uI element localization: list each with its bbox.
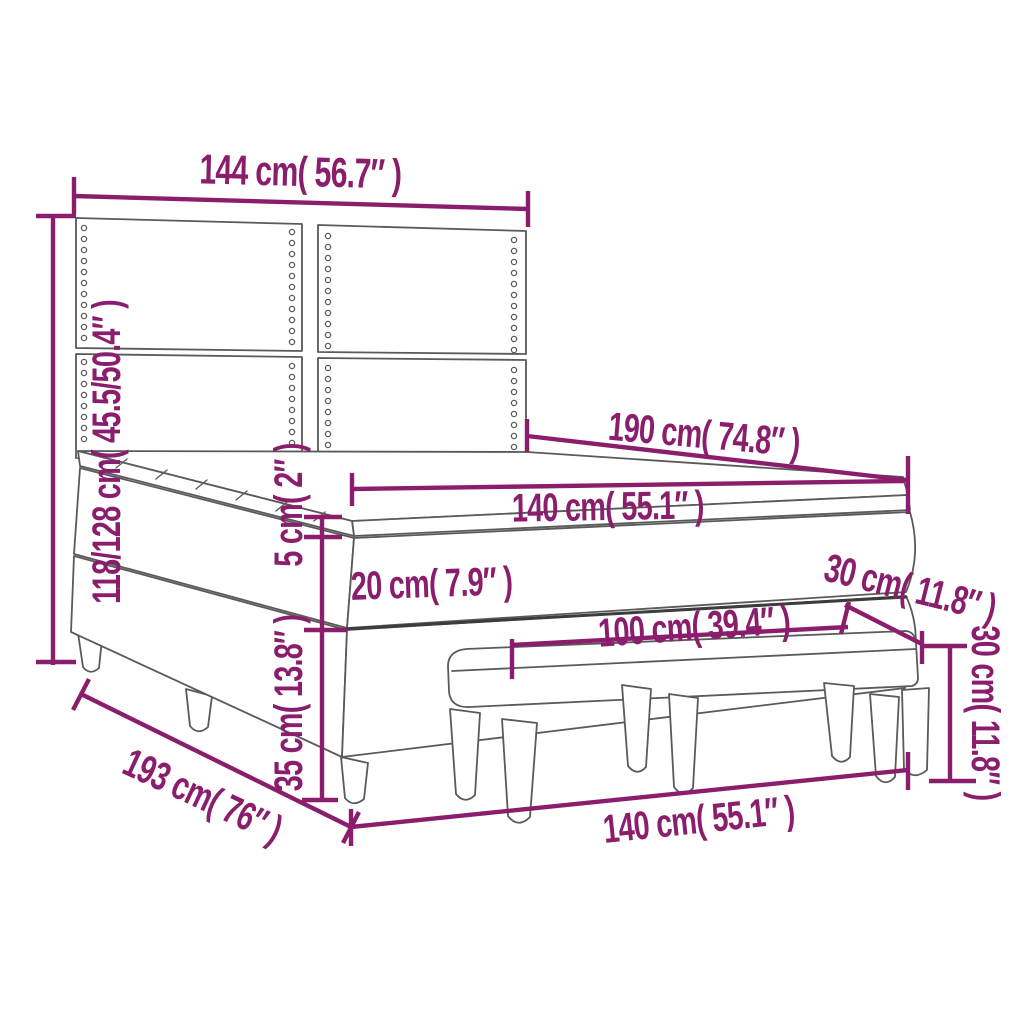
nailhead-dot (325, 277, 330, 282)
nailhead-dot (511, 400, 516, 405)
nailhead-dot (325, 288, 330, 293)
nailhead-dot (289, 374, 294, 379)
nailhead-dot (289, 418, 294, 423)
nailhead-dot (511, 367, 516, 372)
nailhead-dot (511, 248, 516, 253)
nailhead-dot (325, 310, 330, 315)
nailhead-dot (289, 273, 294, 278)
nailhead-dot (81, 258, 86, 263)
nailhead-dot (289, 363, 294, 368)
nailhead-dot (81, 280, 86, 285)
nailhead-dot (511, 303, 516, 308)
dim-frame-length-label: 193 cm( 76″ ) (116, 740, 288, 852)
nailhead-dot (511, 433, 516, 438)
dim-bed-length-label: 190 cm( 74.8″ ) (607, 404, 802, 465)
nailhead-dot (511, 411, 516, 416)
bench-leg (450, 709, 480, 800)
nailhead-dot (325, 299, 330, 304)
nailhead-dot (289, 317, 294, 322)
nailhead-dot (289, 251, 294, 256)
nailhead-dot (511, 422, 516, 427)
nailhead-dot (325, 398, 330, 403)
headboard-panel-top-right (318, 225, 526, 354)
nailhead-dot (511, 378, 516, 383)
nailhead-dot (325, 233, 330, 238)
nailhead-dot (325, 332, 330, 337)
diagram-canvas: 144 cm( 56.7″ ) 118/128 cm( 45.5/50.4″ )… (0, 0, 1024, 1024)
bed-dimension-diagram: 144 cm( 56.7″ ) 118/128 cm( 45.5/50.4″ )… (0, 0, 1024, 1024)
nailhead-dot (289, 306, 294, 311)
dim-overall-height-label: 118/128 cm( 45.5/50.4″ ) (84, 300, 129, 604)
nailhead-dot (325, 442, 330, 447)
nailhead-dot (511, 292, 516, 297)
nailhead-dot (511, 336, 516, 341)
nailhead-dot (81, 269, 86, 274)
dim-overall-height (36, 216, 76, 665)
nailhead-dot (289, 262, 294, 267)
nailhead-dot (325, 321, 330, 326)
nailhead-dot (289, 229, 294, 234)
nailhead-dot (289, 407, 294, 412)
dim-bench-height-label: 30 cm( 11.8″ ) (963, 626, 1008, 801)
nailhead-dot (289, 429, 294, 434)
nailhead-dot (325, 431, 330, 436)
dim-base-height-label: 35 cm( 13.8″ ) (266, 615, 311, 792)
bench-leg (622, 685, 651, 772)
nailhead-dot (511, 237, 516, 242)
nailhead-dot (81, 236, 86, 241)
bed-leg (341, 757, 368, 803)
bench-leg (870, 694, 899, 782)
nailhead-dot (289, 240, 294, 245)
dim-topper-thickness-label: 5 cm( 2″ ) (266, 443, 311, 566)
headboard-panel-bottom-right (318, 358, 526, 460)
nailhead-dot (511, 314, 516, 319)
dim-mattress-thickness-label: 20 cm( 7.9″ ) (350, 559, 513, 609)
nailhead-dot (325, 387, 330, 392)
nailhead-dot (511, 259, 516, 264)
nailhead-dot (289, 328, 294, 333)
nailhead-dot (289, 284, 294, 289)
nailhead-dot (325, 376, 330, 381)
nailhead-dot (81, 291, 86, 296)
nailhead-dot (81, 225, 86, 230)
nailhead-dot (511, 325, 516, 330)
nailhead-dot (289, 339, 294, 344)
bench-leg (824, 683, 854, 762)
nailhead-dot (325, 365, 330, 370)
bench-leg (669, 694, 698, 793)
nailhead-dot (325, 244, 330, 249)
dim-mattress-width-label: 140 cm( 55.1″ ) (511, 483, 704, 531)
nailhead-dot (511, 270, 516, 275)
dimension-line (74, 196, 528, 209)
nailhead-dot (289, 295, 294, 300)
furniture-drawing (71, 218, 929, 823)
nailhead-dot (81, 247, 86, 252)
nailhead-dot (511, 347, 516, 352)
nailhead-dot (289, 385, 294, 390)
dim-headboard-width-label: 144 cm( 56.7″ ) (199, 145, 402, 197)
nailhead-dot (325, 266, 330, 271)
nailhead-dot (511, 389, 516, 394)
nailhead-dot (325, 343, 330, 348)
nailhead-dot (511, 444, 516, 449)
nailhead-dot (325, 255, 330, 260)
nailhead-dot (511, 281, 516, 286)
nailhead-dot (325, 420, 330, 425)
headboard (76, 218, 526, 462)
nailhead-dot (289, 396, 294, 401)
nailhead-dot (325, 409, 330, 414)
